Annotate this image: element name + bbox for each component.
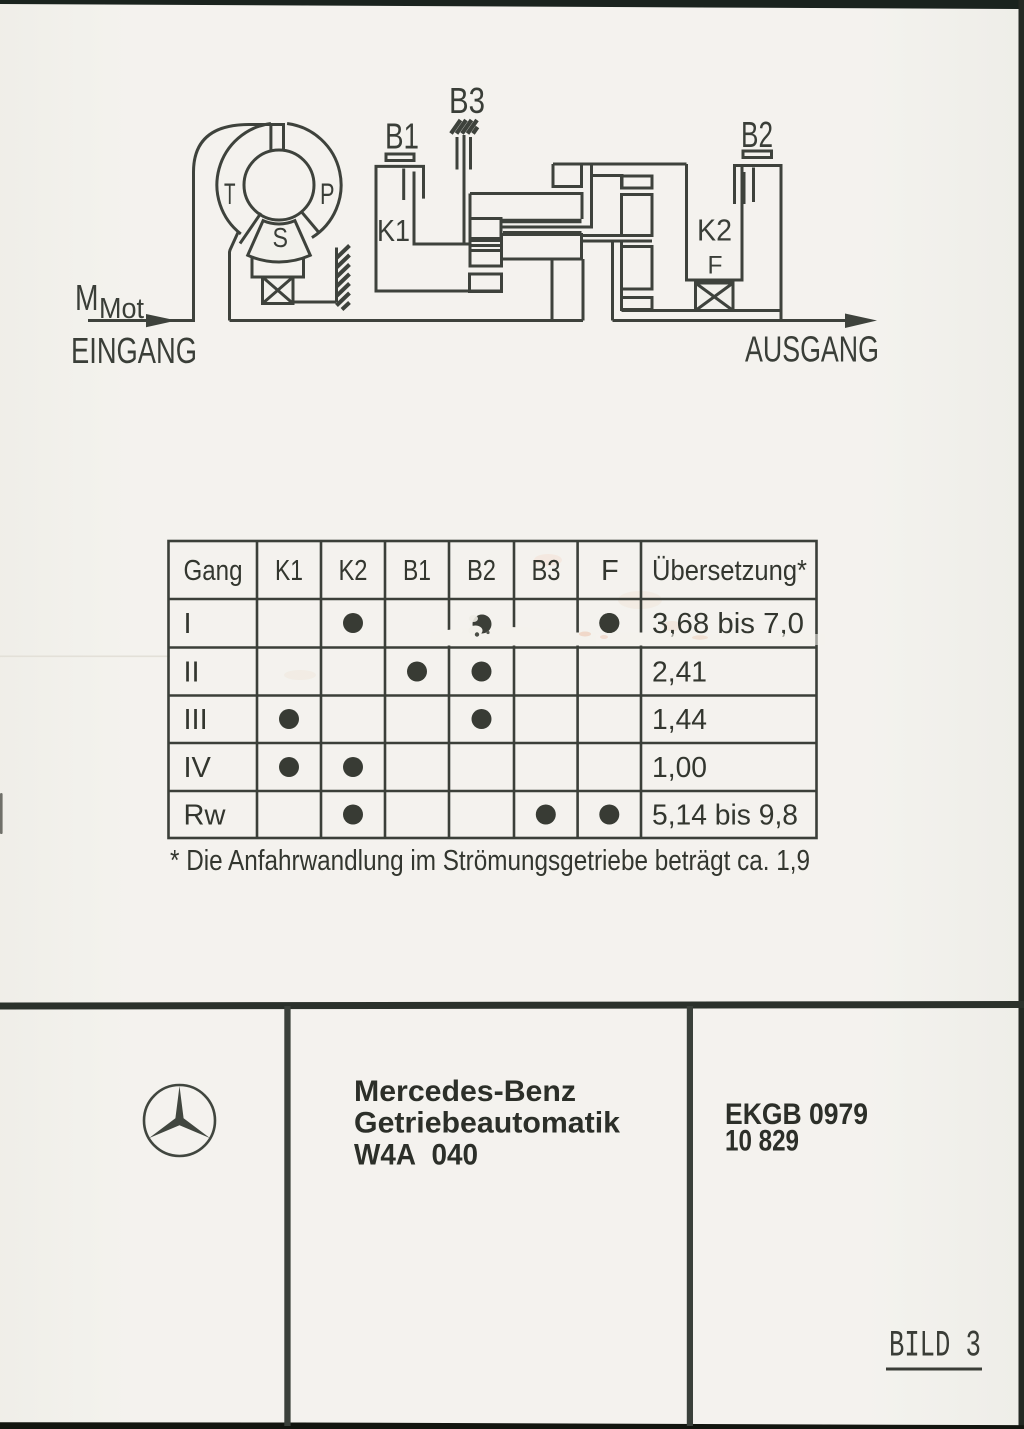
svg-text:I: I — [184, 608, 192, 640]
svg-text:EINGANG: EINGANG — [71, 330, 197, 371]
svg-text:1,44: 1,44 — [652, 704, 707, 736]
svg-text:Getriebeautomatik: Getriebeautomatik — [354, 1107, 621, 1140]
svg-text:B1: B1 — [403, 555, 431, 587]
svg-text:B2: B2 — [741, 114, 773, 155]
svg-text:10 829: 10 829 — [725, 1125, 799, 1158]
svg-text:Mercedes-Benz: Mercedes-Benz — [354, 1075, 576, 1108]
svg-text:AUSGANG: AUSGANG — [745, 329, 879, 370]
svg-text:B3: B3 — [449, 80, 485, 121]
svg-text:B2: B2 — [467, 555, 496, 587]
svg-text:F: F — [708, 252, 723, 280]
svg-text:K2: K2 — [697, 213, 732, 248]
svg-text:Übersetzung*: Übersetzung* — [652, 555, 807, 587]
svg-text:K1: K1 — [275, 555, 303, 587]
svg-text:* Die Anfahrwandlung im Strömu: * Die Anfahrwandlung im Strömungsgetrieb… — [170, 845, 810, 877]
svg-text:M: M — [75, 277, 99, 318]
svg-text:IV: IV — [184, 752, 212, 784]
svg-text:S: S — [273, 222, 289, 253]
svg-text:Gang: Gang — [184, 555, 243, 587]
svg-text:B1: B1 — [385, 116, 419, 157]
svg-text:B3: B3 — [532, 555, 561, 587]
svg-text:III: III — [184, 704, 208, 736]
svg-text:K1: K1 — [377, 213, 410, 248]
svg-text:Rw: Rw — [184, 800, 227, 832]
svg-text:1,00: 1,00 — [652, 752, 707, 784]
svg-text:W4A 040: W4A 040 — [354, 1139, 478, 1172]
svg-text:P: P — [320, 178, 335, 211]
svg-text:BILD 3: BILD 3 — [889, 1326, 981, 1368]
svg-text:T: T — [224, 178, 236, 211]
svg-text:Mot: Mot — [99, 293, 144, 325]
svg-text:K2: K2 — [339, 555, 368, 587]
svg-text:II: II — [184, 657, 200, 689]
svg-text:F: F — [601, 555, 619, 587]
svg-text:2,41: 2,41 — [652, 657, 707, 689]
svg-text:5,14 bis 9,8: 5,14 bis 9,8 — [652, 800, 798, 832]
